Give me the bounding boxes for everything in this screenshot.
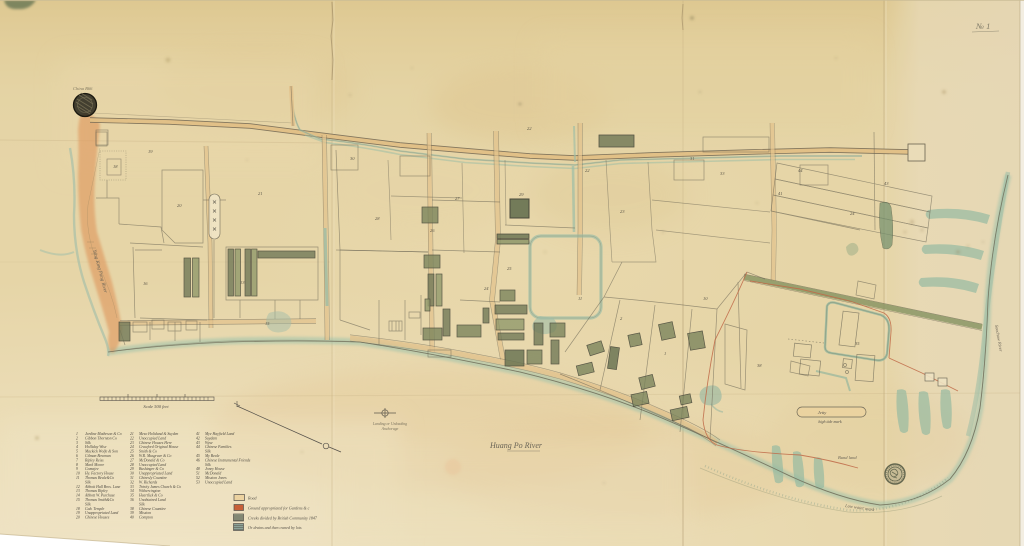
svg-text:Anchorage: Anchorage <box>381 427 399 431</box>
svg-text:Silk: Silk <box>205 463 211 467</box>
svg-text:Bund land: Bund land <box>838 455 857 460</box>
svg-text:1: 1 <box>76 432 78 436</box>
svg-text:high tide mark: high tide mark <box>818 419 842 424</box>
svg-text:33: 33 <box>130 485 134 489</box>
svg-text:Suydam: Suydam <box>205 436 217 440</box>
svg-text:22: 22 <box>130 436 134 440</box>
svg-text:Silk: Silk <box>85 480 91 484</box>
svg-text:30: 30 <box>130 472 134 476</box>
svg-text:Thomas Ripley: Thomas Ripley <box>85 489 108 493</box>
svg-text:21: 21 <box>258 191 263 196</box>
svg-text:33: 33 <box>720 171 725 176</box>
svg-text:32: 32 <box>130 480 134 484</box>
svg-text:11: 11 <box>578 296 582 301</box>
svg-text:Unobtained Land: Unobtained Land <box>139 498 166 502</box>
svg-text:Mission Jones: Mission Jones <box>204 476 227 480</box>
svg-text:Mission: Mission <box>138 511 151 515</box>
svg-text:19: 19 <box>76 511 80 515</box>
svg-text:25: 25 <box>507 266 512 271</box>
svg-text:Mark Moore: Mark Moore <box>84 463 104 467</box>
svg-text:36: 36 <box>130 498 134 502</box>
svg-text:8: 8 <box>76 463 78 467</box>
svg-text:Huang Po River: Huang Po River <box>489 441 543 450</box>
svg-text:Scale 500 feet: Scale 500 feet <box>143 404 169 409</box>
svg-text:28: 28 <box>130 463 134 467</box>
svg-text:39: 39 <box>130 511 134 515</box>
svg-text:44: 44 <box>798 168 803 173</box>
svg-text:Crawford Original House: Crawford Original House <box>139 445 179 449</box>
svg-text:Unoccupied Land: Unoccupied Land <box>205 480 232 484</box>
svg-text:Trinity James Church & Co: Trinity James Church & Co <box>139 485 181 489</box>
svg-text:Landing or Unloading: Landing or Unloading <box>372 422 407 426</box>
svg-text:Ripley Reiss: Ripley Reiss <box>84 458 104 462</box>
svg-text:15: 15 <box>76 498 80 502</box>
svg-text:Chinese Families: Chinese Families <box>205 445 232 449</box>
svg-text:2: 2 <box>76 436 78 440</box>
svg-text:23: 23 <box>620 209 625 214</box>
svg-text:38: 38 <box>130 507 134 511</box>
svg-text:Chinese Instrumental Friends: Chinese Instrumental Friends <box>205 458 251 462</box>
svg-text:42: 42 <box>196 436 200 440</box>
svg-text:Silk: Silk <box>85 502 91 506</box>
svg-text:Gibbon Thornton Co: Gibbon Thornton Co <box>85 436 117 440</box>
svg-text:26: 26 <box>430 228 435 233</box>
svg-text:Thomas Smith&Co: Thomas Smith&Co <box>85 498 114 502</box>
svg-text:Bushinger & Co: Bushinger & Co <box>139 467 164 471</box>
svg-text:11: 11 <box>76 476 80 480</box>
svg-text:45: 45 <box>196 454 200 458</box>
svg-text:21: 21 <box>130 432 134 436</box>
svg-text:22: 22 <box>585 168 590 173</box>
svg-text:Joney House: Joney House <box>205 467 225 471</box>
svg-text:Abbott W. Purchase: Abbott W. Purchase <box>84 494 115 498</box>
svg-text:Holliday Wise: Holliday Wise <box>84 445 107 449</box>
svg-text:Silk: Silk <box>205 450 211 454</box>
svg-text:Unappropriated Land: Unappropriated Land <box>85 511 118 515</box>
svg-text:W. Richards: W. Richards <box>139 480 158 484</box>
svg-text:Chinese Houses: Chinese Houses <box>85 516 110 520</box>
svg-text:China B66: China B66 <box>73 86 93 91</box>
svg-text:Silk: Silk <box>139 502 145 506</box>
svg-text:Unoccupied Land: Unoccupied Land <box>139 463 166 467</box>
svg-text:Withercington: Withercington <box>139 489 160 493</box>
svg-text:Wyse: Wyse <box>205 441 213 445</box>
svg-text:W.R. Musgrave & Co: W.R. Musgrave & Co <box>139 454 172 458</box>
svg-text:3: 3 <box>76 441 78 445</box>
svg-text:20: 20 <box>177 203 182 208</box>
svg-text:Smith & Co: Smith & Co <box>139 450 157 454</box>
svg-text:26: 26 <box>130 454 134 458</box>
svg-text:Road: Road <box>247 496 257 501</box>
svg-text:18: 18 <box>76 507 80 511</box>
svg-text:9: 9 <box>76 467 78 471</box>
svg-text:24: 24 <box>484 286 489 291</box>
svg-text:27: 27 <box>455 196 460 201</box>
svg-text:51: 51 <box>196 472 200 476</box>
svg-text:53: 53 <box>196 480 200 484</box>
svg-text:18: 18 <box>113 164 118 169</box>
svg-text:52: 52 <box>196 476 200 480</box>
svg-text:Jardine Matheson & Co: Jardine Matheson & Co <box>85 432 122 436</box>
svg-text:14: 14 <box>76 494 80 498</box>
svg-text:My Beale: My Beale <box>204 454 220 458</box>
svg-text:23: 23 <box>130 441 134 445</box>
svg-text:19: 19 <box>148 149 153 154</box>
svg-text:McDonald & Co: McDonald & Co <box>138 458 165 462</box>
svg-text:Silk: Silk <box>85 441 91 445</box>
svg-text:Meso Holidand & Suyden: Meso Holidand & Suyden <box>138 432 178 436</box>
svg-text:13: 13 <box>76 489 80 493</box>
svg-text:24: 24 <box>850 211 855 216</box>
svg-text:Unoccupied Land: Unoccupied Land <box>139 436 166 440</box>
svg-text:48: 48 <box>196 467 200 471</box>
svg-text:41: 41 <box>778 191 783 196</box>
svg-text:12: 12 <box>76 485 80 489</box>
svg-text:28: 28 <box>375 216 380 221</box>
svg-text:10: 10 <box>703 296 708 301</box>
svg-text:№ 1: № 1 <box>975 21 990 31</box>
svg-text:Compton: Compton <box>139 516 153 520</box>
svg-text:31: 31 <box>130 476 134 480</box>
svg-text:Gab. Temple: Gab. Temple <box>85 507 105 511</box>
svg-text:13: 13 <box>240 280 245 285</box>
svg-text:Unappropriated Land: Unappropriated Land <box>139 472 172 476</box>
svg-text:29: 29 <box>130 467 134 471</box>
svg-text:4: 4 <box>76 445 78 449</box>
svg-text:31: 31 <box>690 156 695 161</box>
svg-text:Ground appropriated for Garden: Ground appropriated for Gardens & c <box>248 506 310 511</box>
svg-text:Gilman Bowman: Gilman Bowman <box>85 454 111 458</box>
svg-text:35: 35 <box>855 341 860 346</box>
svg-text:Abbott Hall Bros. Lane: Abbott Hall Bros. Lane <box>84 485 121 489</box>
svg-text:Thomas Beale&Co: Thomas Beale&Co <box>85 476 114 480</box>
svg-text:16: 16 <box>143 281 148 286</box>
svg-text:Hy. Factory House: Hy. Factory House <box>84 472 114 476</box>
svg-text:1: 1 <box>664 351 666 356</box>
svg-text:43: 43 <box>196 441 200 445</box>
svg-text:46: 46 <box>196 458 200 462</box>
svg-text:6: 6 <box>76 454 78 458</box>
svg-text:5: 5 <box>76 450 78 454</box>
svg-text:Or drains and then owned by lo: Or drains and then owned by lots <box>248 525 302 530</box>
svg-text:Chinese Counttee: Chinese Counttee <box>139 507 166 511</box>
svg-text:34: 34 <box>130 489 134 493</box>
svg-text:25: 25 <box>130 450 134 454</box>
svg-text:McDonald: McDonald <box>204 472 221 476</box>
svg-text:35: 35 <box>130 494 134 498</box>
svg-text:38: 38 <box>757 363 762 368</box>
svg-text:Creeks divided by British Comm: Creeks divided by British Community 1847 <box>248 516 318 521</box>
svg-text:Chinese Houses Here: Chinese Houses Here <box>139 441 172 445</box>
svg-text:Jetty: Jetty <box>818 410 827 415</box>
svg-text:41: 41 <box>196 432 200 436</box>
svg-text:43: 43 <box>884 181 889 186</box>
svg-text:Chinesly Counttee: Chinesly Counttee <box>139 476 167 480</box>
svg-text:20: 20 <box>76 516 80 520</box>
svg-text:Mackick Wolfe & Son: Mackick Wolfe & Son <box>84 450 118 454</box>
svg-text:40: 40 <box>130 516 134 520</box>
svg-text:10: 10 <box>76 472 80 476</box>
svg-text:24: 24 <box>130 445 134 449</box>
svg-text:Heartlick & Co: Heartlick & Co <box>138 494 163 498</box>
svg-text:Mye Hayfield Land: Mye Hayfield Land <box>204 432 234 436</box>
svg-text:15: 15 <box>265 321 270 326</box>
svg-text:22: 22 <box>527 126 532 131</box>
svg-text:Gomajee: Gomajee <box>85 467 99 471</box>
svg-text:29: 29 <box>519 192 524 197</box>
svg-text:30: 30 <box>350 156 355 161</box>
svg-text:44: 44 <box>196 445 200 449</box>
